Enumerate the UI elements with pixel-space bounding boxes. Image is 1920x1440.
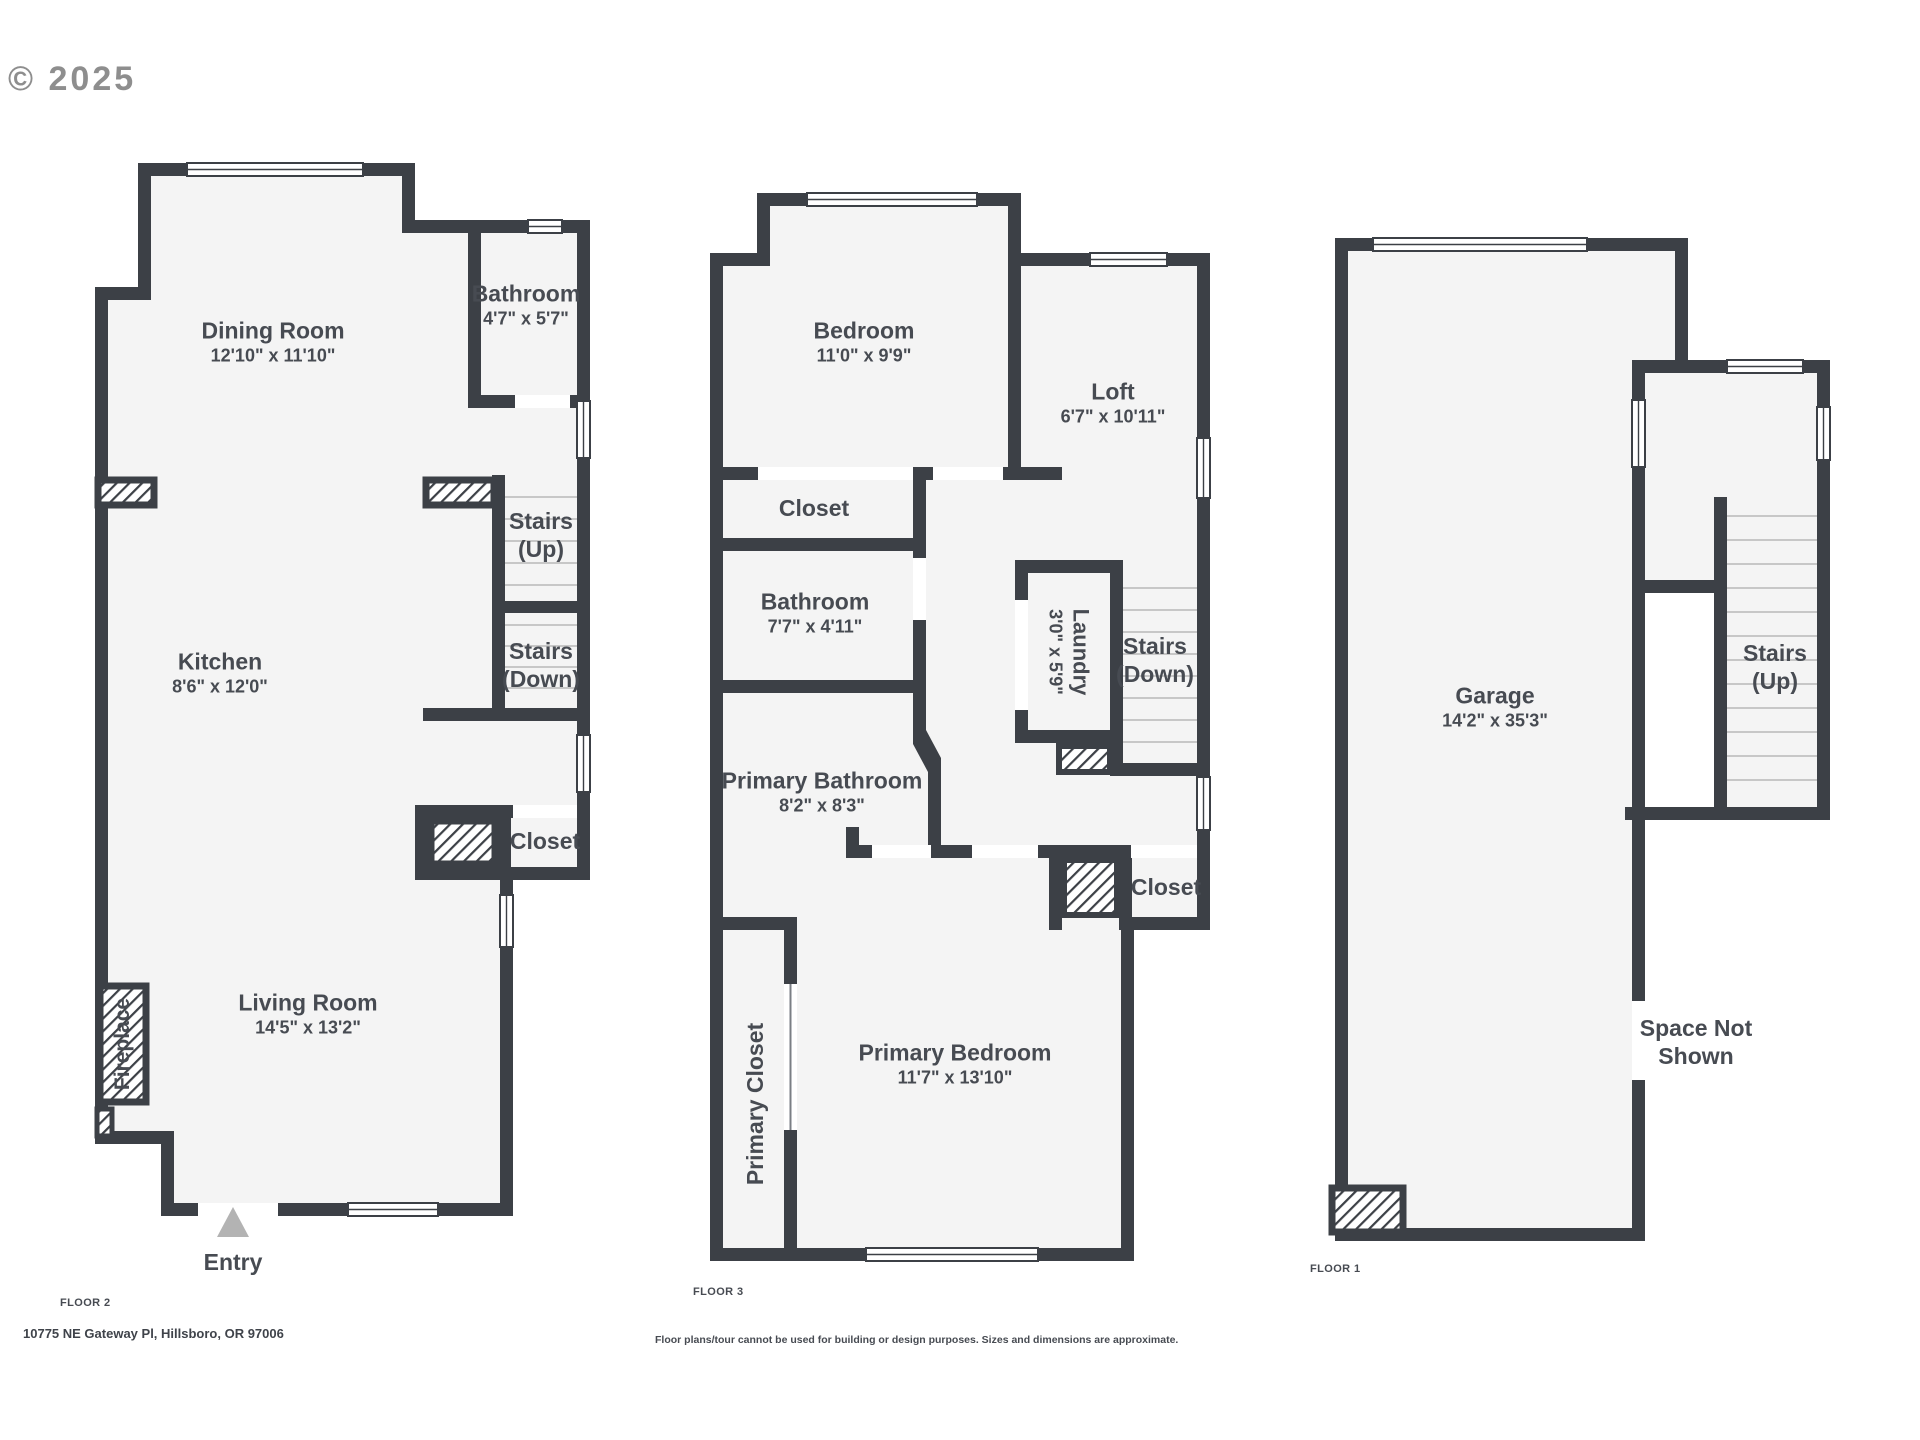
floorplan-page: © 2025 FLOOR 2 FLOOR 3 FLOOR 1 10775 NE …: [0, 0, 1920, 1440]
floor1-plan: [1332, 238, 1830, 1241]
utility-hatch: [1059, 746, 1110, 772]
floorplan-canvas: [0, 0, 1920, 1440]
cased-opening-hatch: [98, 480, 154, 505]
floor1-hatched-openings: [1332, 1188, 1403, 1232]
disclaimer-text: Floor plans/tour cannot be used for buil…: [655, 1334, 1178, 1346]
floor2-plan: [95, 163, 590, 1237]
floor1-tag: FLOOR 1: [1310, 1263, 1360, 1275]
garage-corner-hatch: [1332, 1188, 1403, 1232]
copyright-watermark: © 2025: [8, 60, 136, 99]
cased-opening-hatch: [426, 480, 494, 505]
wall-hatch: [97, 1109, 112, 1136]
floor1-space-not-shown-cutout: [1645, 593, 1714, 807]
closet-hatch: [431, 821, 495, 864]
fireplace-hatch: [100, 986, 146, 1102]
floor2-tag: FLOOR 2: [60, 1297, 110, 1309]
floor3-tag: FLOOR 3: [693, 1286, 743, 1298]
floor1-door-openings: [1632, 1001, 1645, 1080]
primary-closet-sliding-door: [784, 977, 797, 1137]
property-address: 10775 NE Gateway Pl, Hillsboro, OR 97006: [23, 1326, 284, 1341]
floor3-plan: [710, 193, 1210, 1261]
closet-hatch: [1064, 860, 1117, 915]
